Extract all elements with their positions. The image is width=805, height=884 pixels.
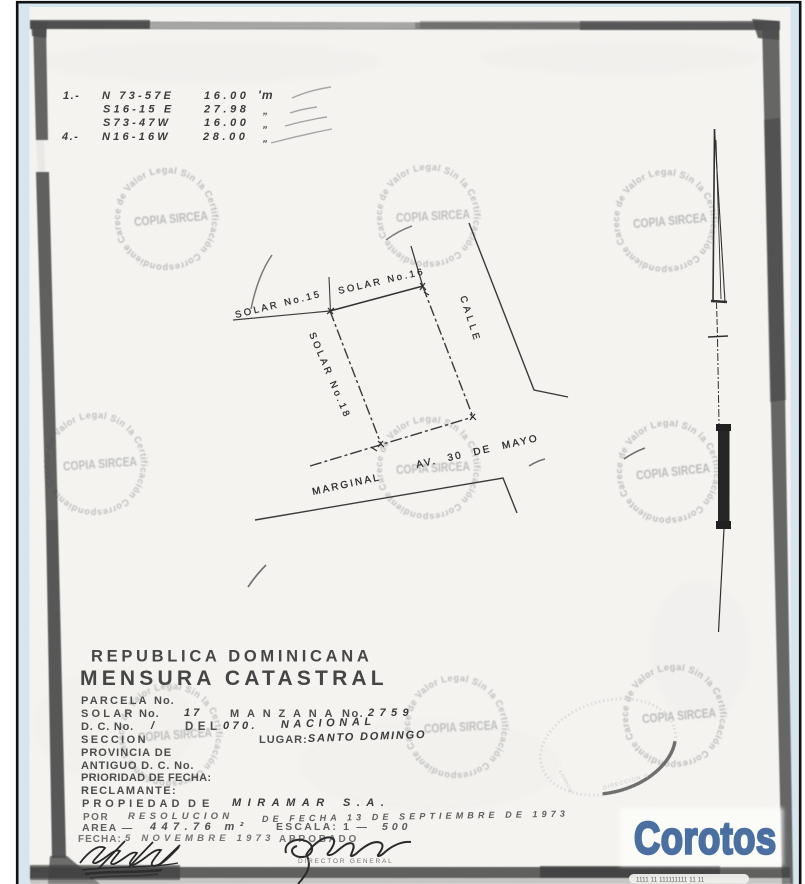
svg-text:D. C. No.: D. C. No.	[81, 721, 134, 733]
svg-text:4.-: 4.-	[61, 131, 79, 143]
svg-text:PRIORIDAD DE FECHA:: PRIORIDAD DE FECHA:	[81, 772, 211, 784]
svg-text:1.-: 1.-	[63, 90, 80, 102]
svg-text:„: „	[262, 120, 268, 131]
svg-text:'m: 'm	[258, 88, 274, 102]
svg-text:MENSURA CATASTRAL: MENSURA CATASTRAL	[80, 667, 388, 690]
svg-text:SOLAR: SOLAR	[81, 708, 136, 720]
svg-text:28.00: 28.00	[202, 131, 249, 143]
svg-text:S73-47W: S73-47W	[103, 117, 171, 129]
svg-text:S.A.: S.A.	[343, 797, 390, 809]
svg-text:ESCALA: 1 —: ESCALA: 1 —	[276, 821, 369, 833]
svg-text:447.76 m²: 447.76 m²	[149, 821, 249, 833]
svg-text:N16-16W: N16-16W	[102, 131, 171, 143]
svg-text:FECHA:: FECHA:	[78, 834, 122, 845]
svg-text:„: „	[262, 134, 268, 145]
svg-text:DE: DE	[188, 798, 215, 810]
svg-text:MIRAMAR: MIRAMAR	[232, 797, 331, 809]
svg-text:S16-15 E: S16-15 E	[103, 104, 174, 116]
svg-text:1111 11 111111111 11 11: 1111 11 111111111 11 11	[636, 878, 705, 884]
svg-text:ANTIGUO D. C. No.: ANTIGUO D. C. No.	[81, 760, 194, 772]
svg-text:500: 500	[382, 821, 412, 833]
svg-text:No.: No.	[154, 695, 175, 707]
svg-text:PARCELA: PARCELA	[81, 695, 149, 707]
svg-text:LUGAR:: LUGAR:	[259, 734, 308, 746]
svg-text:17: 17	[184, 707, 202, 719]
svg-text:5 NOVEMBRE 1973: 5 NOVEMBRE 1973	[125, 833, 275, 844]
svg-text:RECLAMANTE:: RECLAMANTE:	[81, 785, 177, 797]
svg-text:PROVINCIA DE: PROVINCIA DE	[81, 747, 172, 759]
svg-text:DEL: DEL	[185, 721, 222, 733]
svg-text:PROPIEDAD: PROPIEDAD	[82, 798, 183, 810]
svg-text:16.00: 16.00	[204, 90, 250, 102]
svg-text:27.98: 27.98	[203, 104, 250, 116]
svg-text:N 73-57E: N 73-57E	[102, 90, 174, 102]
svg-text:SECCION: SECCION	[81, 734, 148, 746]
svg-text:„: „	[262, 106, 268, 117]
svg-text:16.00: 16.00	[204, 117, 250, 129]
svg-text:Corotos: Corotos	[634, 813, 777, 864]
svg-text:REPUBLICA DOMINICANA: REPUBLICA DOMINICANA	[91, 648, 372, 666]
svg-text:070.: 070.	[223, 720, 258, 732]
svg-text:DIRECTOR GENERAL: DIRECTOR GENERAL	[298, 858, 394, 865]
svg-text:No.: No.	[139, 708, 160, 720]
